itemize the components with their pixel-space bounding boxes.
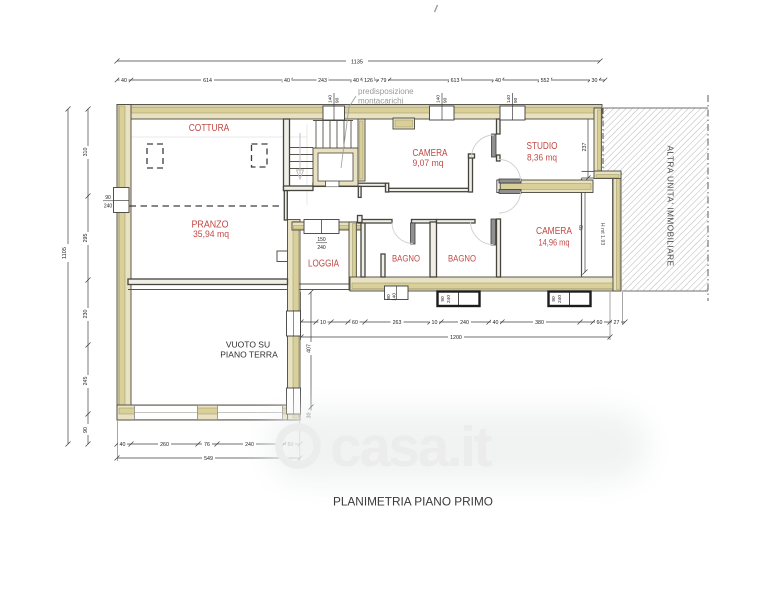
svg-text:H mt 1.93: H mt 1.93 <box>599 223 605 246</box>
svg-text:140: 140 <box>506 95 512 103</box>
svg-text:90: 90 <box>513 97 519 103</box>
svg-text:230: 230 <box>83 310 89 319</box>
svg-text:90: 90 <box>105 195 111 201</box>
svg-text:8,36 mq: 8,36 mq <box>527 153 557 163</box>
svg-text:10: 10 <box>320 320 326 326</box>
svg-text:614: 614 <box>203 78 212 84</box>
svg-text:ALTRA UNITA' IMMOBILIARE: ALTRA UNITA' IMMOBILIARE <box>666 145 675 266</box>
svg-text:LOGGIA: LOGGIA <box>308 259 339 270</box>
svg-text:40: 40 <box>120 442 126 448</box>
svg-text:montacarichi: montacarichi <box>358 97 404 106</box>
svg-text:27: 27 <box>614 320 620 326</box>
svg-text:40: 40 <box>121 78 127 84</box>
svg-text:1200: 1200 <box>450 335 462 341</box>
svg-text:240: 240 <box>446 295 452 303</box>
svg-text:260: 260 <box>160 442 169 448</box>
svg-text:90: 90 <box>443 97 449 103</box>
svg-text:90: 90 <box>386 294 392 300</box>
svg-text:STUDIO: STUDIO <box>527 141 558 152</box>
svg-text:240: 240 <box>104 204 113 210</box>
svg-text:90: 90 <box>440 296 446 302</box>
svg-text:60: 60 <box>597 320 603 326</box>
svg-text:549: 549 <box>204 456 213 462</box>
svg-text:30: 30 <box>592 78 598 84</box>
svg-text:237: 237 <box>582 143 588 152</box>
svg-text:1135: 1135 <box>351 60 363 66</box>
svg-text:140: 140 <box>392 293 398 301</box>
svg-text:60: 60 <box>352 320 358 326</box>
svg-text:245: 245 <box>83 377 89 386</box>
svg-text:PLANIMETRIA PIANO PRIMO: PLANIMETRIA PIANO PRIMO <box>333 495 493 509</box>
svg-text:240: 240 <box>557 295 563 303</box>
svg-text:CAMERA: CAMERA <box>536 226 572 237</box>
svg-text:14,96 mq: 14,96 mq <box>539 238 570 248</box>
svg-text:40: 40 <box>495 78 501 84</box>
svg-text:310: 310 <box>83 148 89 157</box>
svg-text:40: 40 <box>284 78 290 84</box>
svg-text:240: 240 <box>460 320 469 326</box>
svg-text:VUOTO SU: VUOTO SU <box>226 340 270 350</box>
svg-text:243: 243 <box>318 78 327 84</box>
svg-text:40: 40 <box>353 78 359 84</box>
svg-text:90: 90 <box>335 97 341 103</box>
svg-text:126: 126 <box>364 78 373 84</box>
svg-text:140: 140 <box>436 95 442 103</box>
svg-text:613: 613 <box>451 78 460 84</box>
svg-text:407: 407 <box>307 344 313 353</box>
svg-text:casa.it: casa.it <box>330 415 492 479</box>
svg-text:380: 380 <box>535 320 544 326</box>
svg-text:552: 552 <box>541 78 550 84</box>
svg-text:predisposizione: predisposizione <box>358 87 414 96</box>
svg-text:79: 79 <box>381 78 387 84</box>
svg-text:150: 150 <box>317 237 326 243</box>
svg-text:76: 76 <box>204 442 210 448</box>
svg-text:90: 90 <box>83 427 89 433</box>
svg-text:10: 10 <box>432 320 438 326</box>
svg-text:263: 263 <box>393 320 402 326</box>
svg-text:COTTURA: COTTURA <box>189 123 230 134</box>
svg-text:140: 140 <box>328 95 334 103</box>
svg-text:PIANO TERRA: PIANO TERRA <box>220 350 278 360</box>
svg-text:35,94 mq: 35,94 mq <box>193 229 229 239</box>
svg-text:240: 240 <box>245 442 254 448</box>
svg-text:90: 90 <box>551 296 557 302</box>
svg-text:295: 295 <box>83 234 89 243</box>
svg-text:9,07 mq: 9,07 mq <box>413 158 444 168</box>
svg-text:BAGNO: BAGNO <box>448 254 476 265</box>
svg-text:240: 240 <box>317 245 326 251</box>
svg-text:40: 40 <box>493 320 499 326</box>
svg-text:1105: 1105 <box>62 247 68 259</box>
svg-text:BAGNO: BAGNO <box>392 254 420 265</box>
